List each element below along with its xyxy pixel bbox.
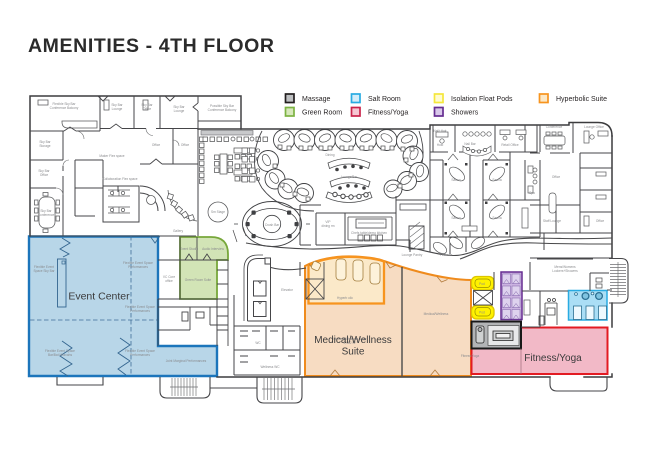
- svg-text:Sauna: Sauna: [451, 178, 460, 182]
- svg-text:Maker Flex space: Maker Flex space: [99, 154, 124, 158]
- svg-text:Spa: Spa: [529, 191, 535, 195]
- svg-text:Salt Room: Salt Room: [368, 96, 401, 103]
- svg-text:Elevator: Elevator: [281, 288, 294, 292]
- svg-text:Sauna: Sauna: [492, 216, 501, 220]
- svg-text:Sm Stage: Sm Stage: [211, 210, 225, 214]
- svg-text:Pod: Pod: [479, 311, 485, 315]
- svg-text:WC: WC: [255, 341, 261, 345]
- svg-text:Sauna: Sauna: [492, 178, 501, 182]
- svg-text:Host: Host: [437, 143, 444, 147]
- svg-text:Gallery: Gallery: [173, 229, 184, 233]
- svg-text:Chefs table/demo kitchen: Chefs table/demo kitchen: [351, 231, 387, 235]
- svg-text:Pedicure: Pedicure: [440, 253, 453, 257]
- svg-text:Collaboration Flex space: Collaboration Flex space: [102, 177, 137, 181]
- svg-text:Conference: Conference: [38, 213, 55, 217]
- svg-text:Nail Bar: Nail Bar: [464, 142, 476, 146]
- svg-text:AMENITIES - 4TH FLOOR: AMENITIES - 4TH FLOOR: [28, 35, 275, 57]
- svg-text:Office: Office: [181, 143, 189, 147]
- svg-text:Storage: Storage: [39, 144, 50, 148]
- svg-text:Fitness/Yoga: Fitness/Yoga: [368, 110, 408, 117]
- svg-text:Retail Office: Retail Office: [501, 143, 519, 147]
- svg-text:Space Sky Bar: Space Sky Bar: [33, 269, 55, 273]
- svg-text:Conference Balcony: Conference Balcony: [50, 106, 79, 110]
- svg-text:Conference: Conference: [546, 125, 563, 129]
- svg-text:Bar/Bat Mitzvahs: Bar/Bat Mitzvahs: [48, 353, 72, 357]
- svg-text:dining rm: dining rm: [321, 224, 334, 228]
- svg-text:Office: Office: [40, 173, 48, 177]
- svg-text:Medical/Wellness: Medical/Wellness: [424, 312, 449, 316]
- svg-text:Joint Marginal Performances: Joint Marginal Performances: [166, 359, 207, 363]
- svg-text:Fitness/Yoga: Fitness/Yoga: [524, 353, 582, 364]
- svg-text:Lounge Office: Lounge Office: [584, 125, 604, 129]
- svg-text:Dining: Dining: [325, 153, 334, 157]
- svg-text:Office: Office: [596, 219, 604, 223]
- svg-text:Green Room: Green Room: [302, 110, 342, 117]
- svg-text:Lounge: Lounge: [112, 107, 123, 111]
- svg-text:Audio Interview: Audio Interview: [202, 247, 224, 251]
- svg-text:Lounge: Lounge: [174, 109, 185, 113]
- svg-text:Medical/Wellness: Medical/Wellness: [314, 335, 392, 346]
- svg-text:Showers: Showers: [451, 110, 479, 117]
- svg-text:Conference Balcony: Conference Balcony: [208, 108, 237, 112]
- svg-text:Office: Office: [143, 107, 151, 111]
- svg-text:Fitness/Yoga: Fitness/Yoga: [461, 354, 480, 358]
- svg-text:Green Room Suite: Green Room Suite: [185, 278, 212, 282]
- svg-text:Event Studio: Event Studio: [180, 247, 198, 251]
- svg-text:Lockers+Showers: Lockers+Showers: [552, 269, 578, 273]
- svg-text:Wellness WC: Wellness WC: [260, 365, 280, 369]
- svg-text:Crush Bar: Crush Bar: [265, 223, 280, 227]
- svg-text:office: office: [165, 279, 173, 283]
- svg-text:Performances: Performances: [128, 265, 148, 269]
- svg-text:Sauna: Sauna: [451, 216, 460, 220]
- svg-text:Office: Office: [552, 175, 560, 179]
- svg-text:Hyperbolic Suite: Hyperbolic Suite: [556, 96, 607, 103]
- svg-text:Event Center: Event Center: [68, 291, 130, 303]
- svg-text:Staff Lounge: Staff Lounge: [543, 219, 561, 223]
- svg-text:Suite: Suite: [342, 347, 365, 358]
- svg-text:Lounge Pantry: Lounge Pantry: [402, 253, 423, 257]
- svg-text:Hyperb olic: Hyperb olic: [337, 296, 353, 300]
- svg-text:Lounge/Bar: Lounge/Bar: [341, 175, 358, 179]
- svg-text:Performances: Performances: [130, 353, 150, 357]
- svg-text:Performances: Performances: [130, 309, 150, 313]
- svg-text:Isolation Float Pods: Isolation Float Pods: [451, 96, 513, 103]
- svg-text:Massage: Massage: [302, 96, 331, 103]
- svg-text:Office: Office: [152, 143, 160, 147]
- svg-text:Pod: Pod: [479, 282, 485, 286]
